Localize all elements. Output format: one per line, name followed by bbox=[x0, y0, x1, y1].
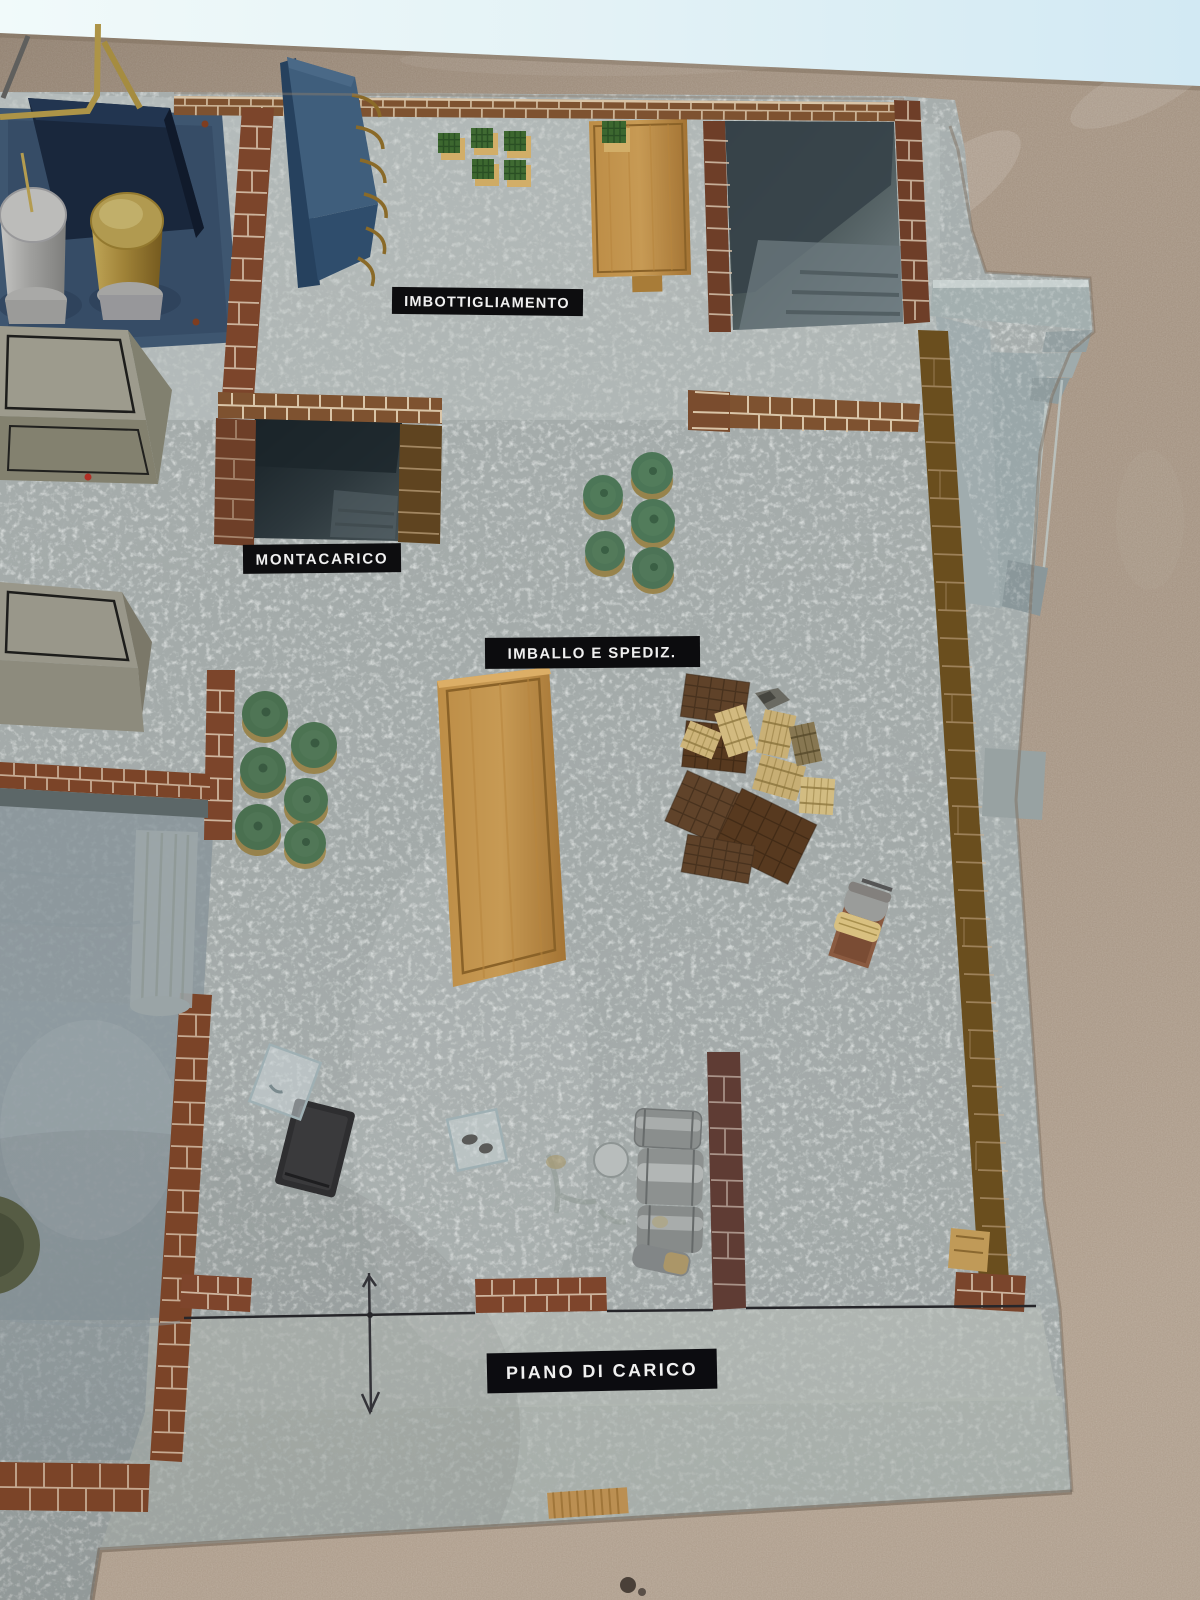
svg-text:IMBOTTIGLIAMENTO: IMBOTTIGLIAMENTO bbox=[404, 294, 570, 312]
svg-text:IMBALLO E SPEDIZ.: IMBALLO E SPEDIZ. bbox=[508, 644, 677, 662]
svg-text:MONTACARICO: MONTACARICO bbox=[256, 550, 389, 568]
svg-text:PIANO DI CARICO: PIANO DI CARICO bbox=[506, 1359, 698, 1383]
